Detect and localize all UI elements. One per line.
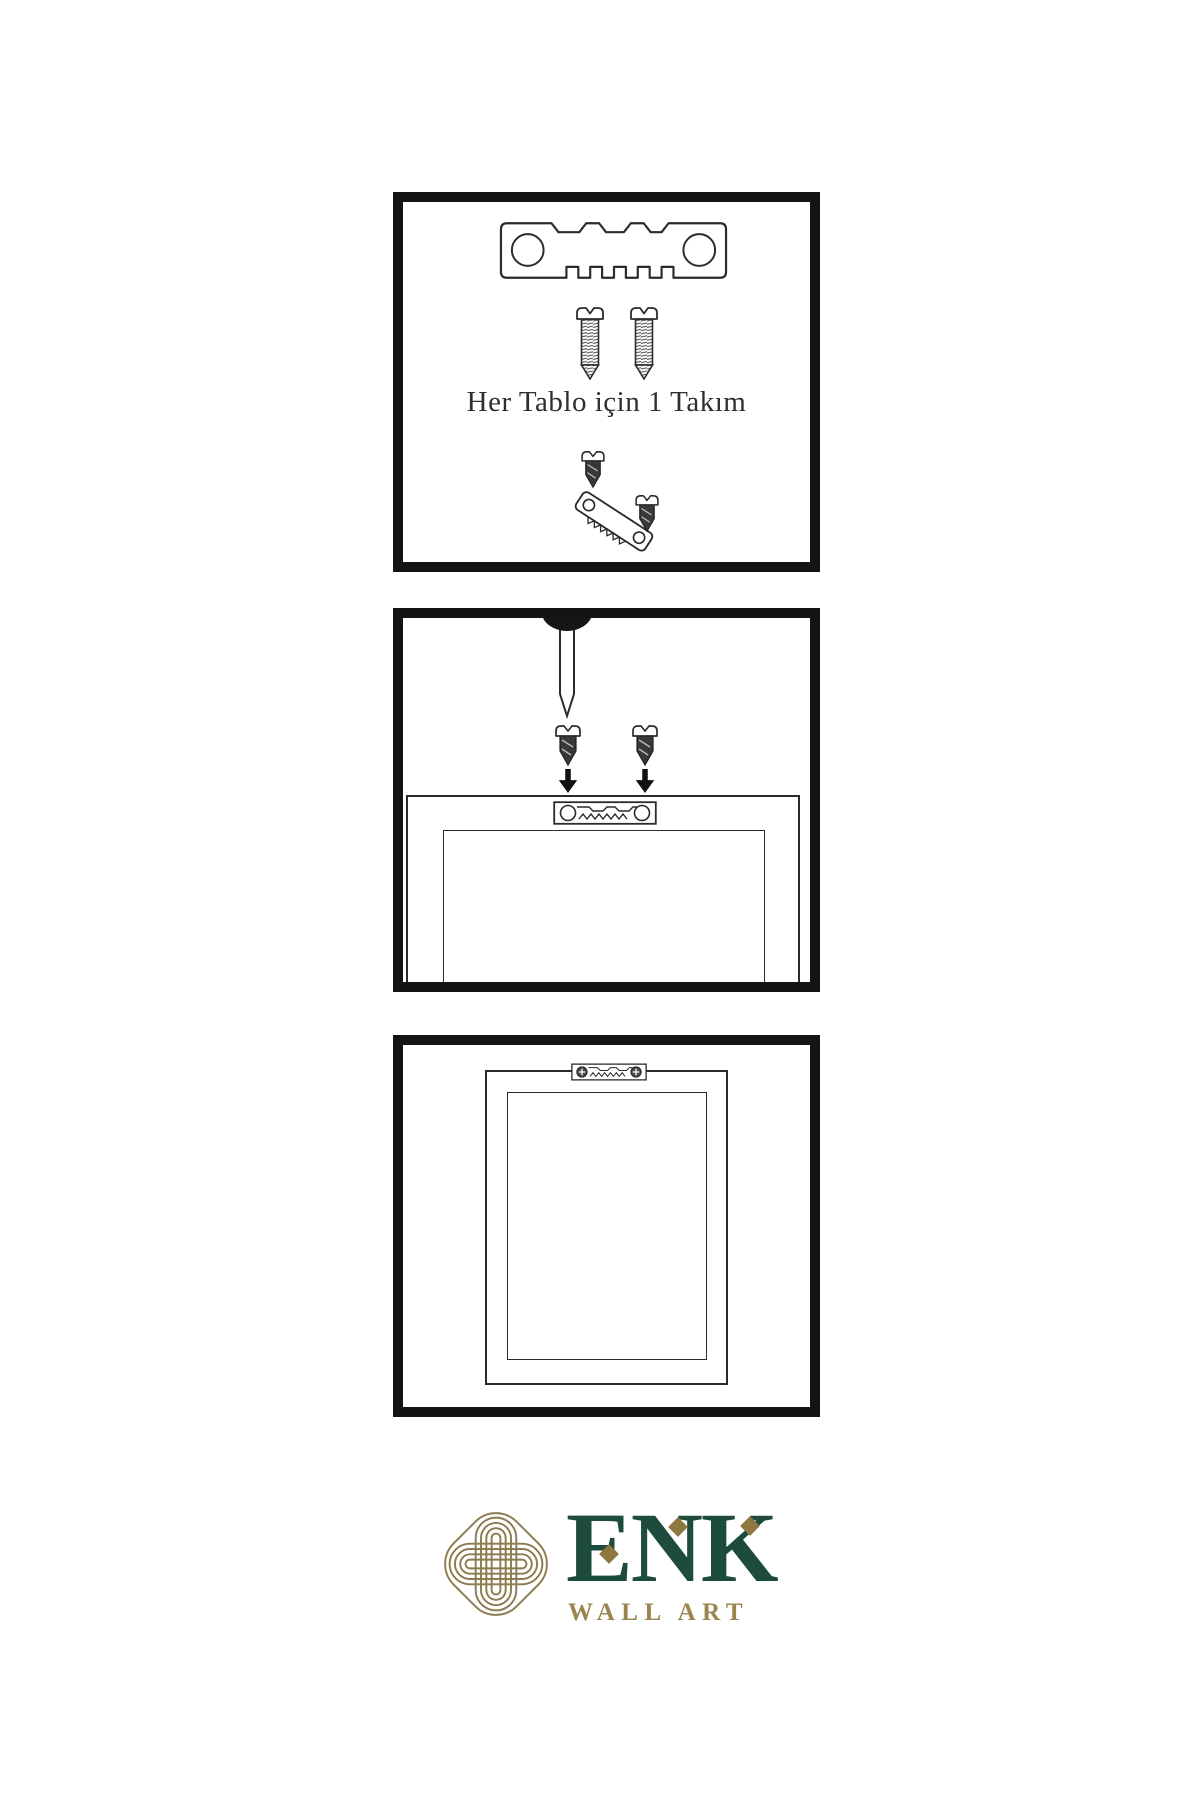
down-arrow-icon xyxy=(557,769,579,793)
down-arrow-icon xyxy=(634,769,656,793)
frame-back-inner-outline xyxy=(507,1092,707,1360)
brand-tagline: WALL ART xyxy=(568,1599,749,1627)
screw-icon xyxy=(633,494,661,534)
nail-icon xyxy=(542,618,592,720)
screwed-sawtooth-hanger-plate-icon xyxy=(571,1062,647,1082)
brand-logo: ENK WALL ART xyxy=(438,1498,818,1648)
step-panel-hardware-kit: Her Tablo için 1 Takım xyxy=(393,192,820,572)
screw-icon xyxy=(553,724,583,768)
screw-icon xyxy=(630,724,660,768)
sawtooth-hanger-plate-icon xyxy=(553,801,657,825)
frame-back-inner-outline xyxy=(443,830,765,992)
screw-icon xyxy=(575,306,605,382)
interlaced-knot-icon xyxy=(438,1505,554,1623)
screw-icon xyxy=(579,450,607,490)
kit-caption: Her Tablo için 1 Takım xyxy=(403,386,810,419)
screw-icon xyxy=(629,306,659,382)
instruction-sheet: Her Tablo için 1 Takım ENK WALL ART xyxy=(0,0,1200,1800)
kit-assembly-detail xyxy=(571,448,691,568)
step-panel-mounting xyxy=(393,608,820,992)
sawtooth-hanger-icon xyxy=(497,220,730,282)
step-panel-hanging xyxy=(393,1035,820,1417)
